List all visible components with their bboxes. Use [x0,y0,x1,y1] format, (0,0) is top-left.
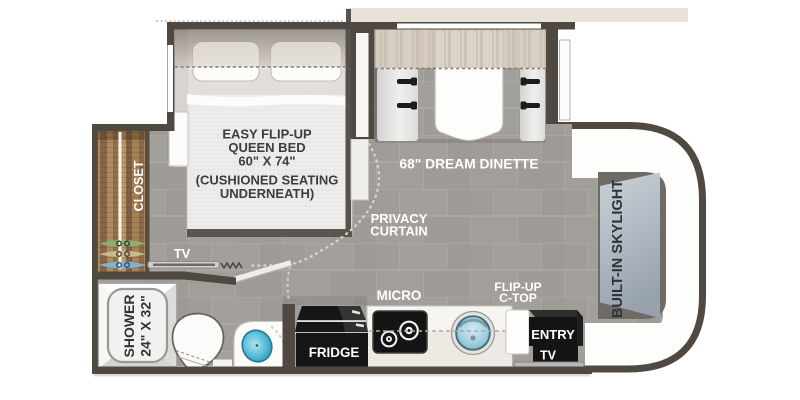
svg-text:24" X 32": 24" X 32" [138,295,154,357]
svg-text:60" X 74": 60" X 74" [238,154,295,169]
svg-text:UNDERNEATH): UNDERNEATH) [220,186,314,201]
svg-text:TV: TV [174,246,191,261]
svg-text:TV: TV [540,349,557,363]
svg-text:CURTAIN: CURTAIN [370,224,428,239]
svg-text:C-TOP: C-TOP [499,291,537,305]
svg-text:ENTRY: ENTRY [531,327,575,342]
svg-text:SHOWER: SHOWER [121,295,137,358]
svg-text:CLOSET: CLOSET [132,160,146,211]
svg-text:MICRO: MICRO [377,288,422,303]
svg-text:FRIDGE: FRIDGE [309,345,360,360]
svg-text:68" DREAM DINETTE: 68" DREAM DINETTE [399,157,538,172]
svg-text:BUILT-IN SKYLIGHT: BUILT-IN SKYLIGHT [610,180,626,318]
